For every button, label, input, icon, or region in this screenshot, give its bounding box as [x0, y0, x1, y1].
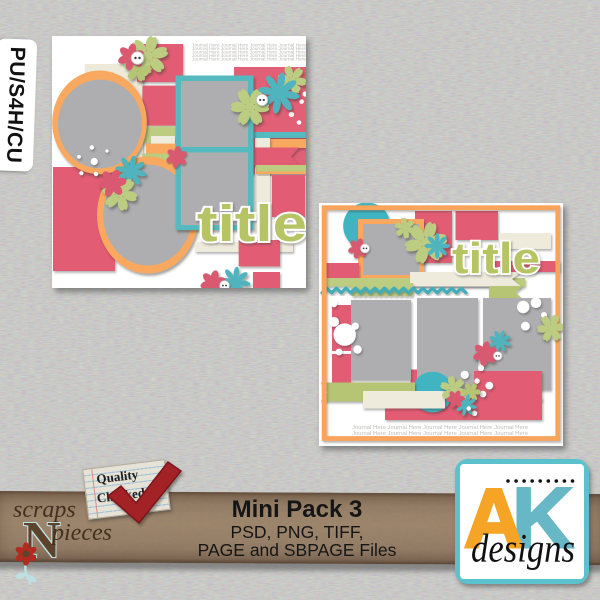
- svg-text:title: title: [452, 234, 540, 283]
- svg-text:Journal Here Journal Here Jour: Journal Here Journal Here Journal Here J…: [192, 57, 306, 62]
- svg-text:title: title: [197, 195, 306, 252]
- svg-text:designs: designs: [471, 525, 575, 570]
